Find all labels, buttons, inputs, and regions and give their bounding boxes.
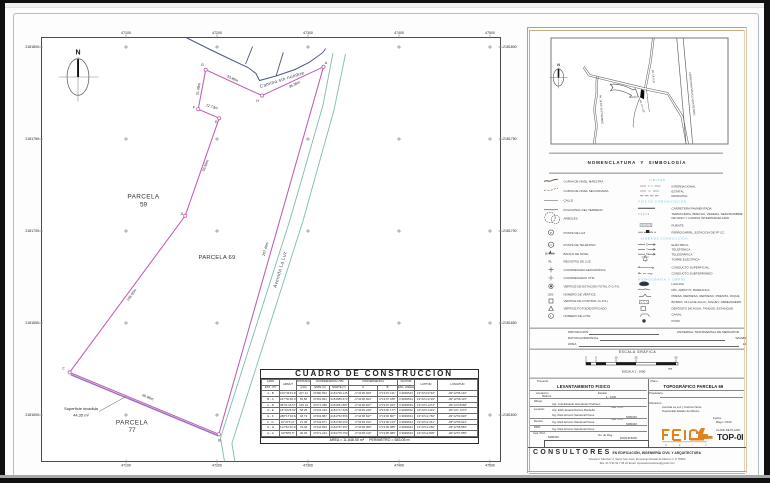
svg-text:10: 10 (615, 356, 618, 360)
svg-text:20: 20 (635, 356, 638, 360)
svg-text:ESCALA 1 : 1000: ESCALA 1 : 1000 (622, 370, 646, 374)
svg-text:0: 0 (595, 356, 597, 360)
svg-text:mts: mts (668, 366, 673, 370)
svg-text:5: 5 (585, 356, 587, 360)
svg-text:D E I C A: D E I C A (665, 443, 713, 446)
svg-text:50: 50 (675, 356, 678, 360)
